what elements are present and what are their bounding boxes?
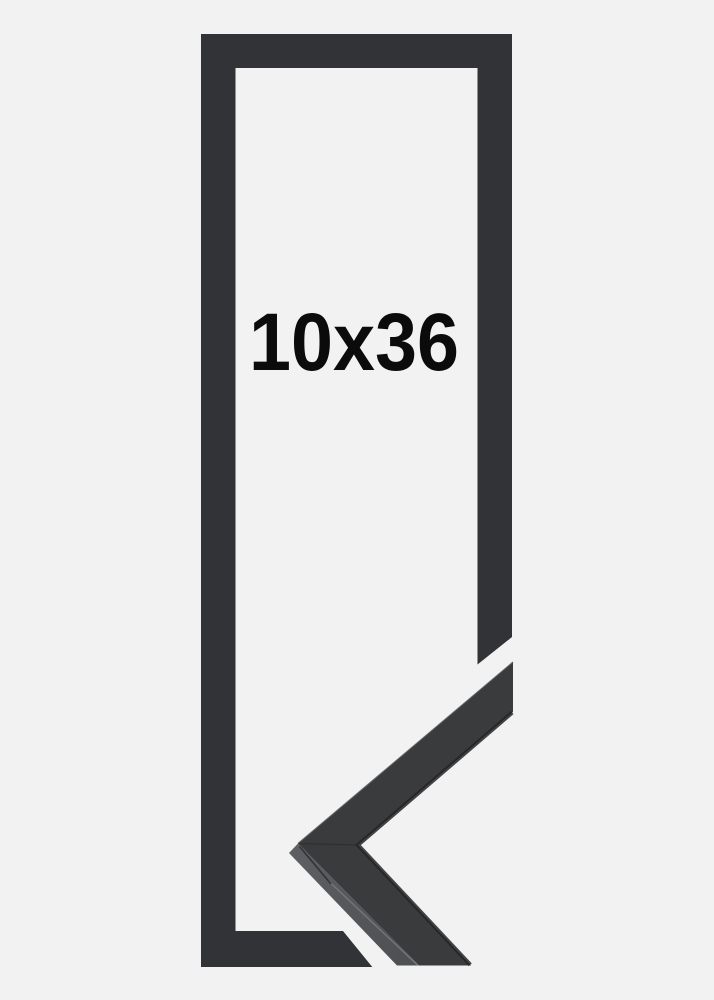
svg-text:10x36: 10x36 bbox=[249, 297, 459, 388]
